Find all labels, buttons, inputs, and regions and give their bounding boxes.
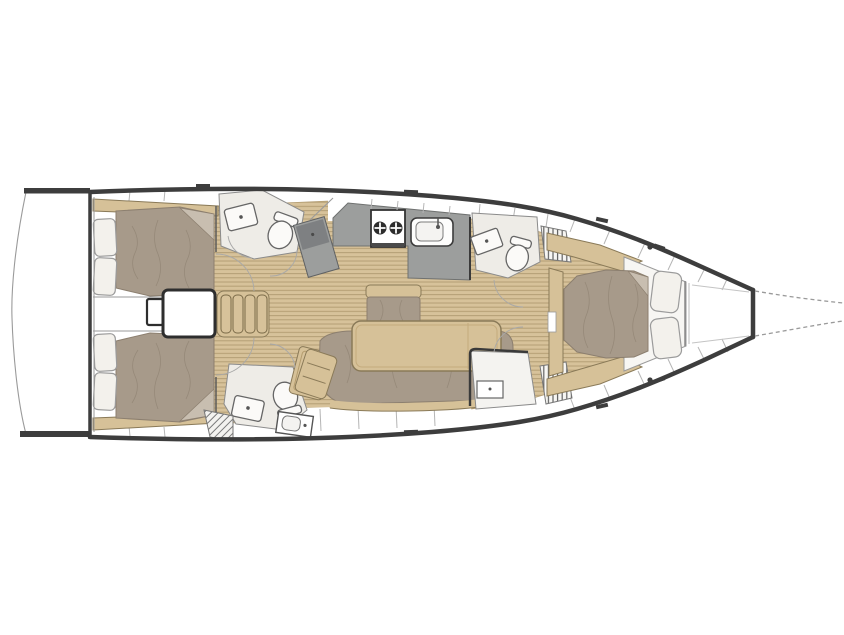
companionway-stairs bbox=[217, 291, 269, 337]
pillow bbox=[650, 270, 683, 313]
bow-guide-lines bbox=[755, 291, 843, 336]
stove bbox=[371, 210, 405, 247]
pillow bbox=[93, 257, 117, 295]
pillow bbox=[650, 316, 683, 359]
salon-bench bbox=[366, 285, 421, 324]
pillow bbox=[93, 333, 117, 371]
vanity-sink bbox=[276, 412, 314, 438]
galley-sink bbox=[411, 218, 453, 246]
floorplan-svg bbox=[0, 0, 844, 635]
pillow bbox=[93, 218, 117, 256]
swim-platform bbox=[12, 188, 90, 437]
boat-floorplan bbox=[0, 0, 844, 635]
pillow bbox=[93, 372, 117, 410]
